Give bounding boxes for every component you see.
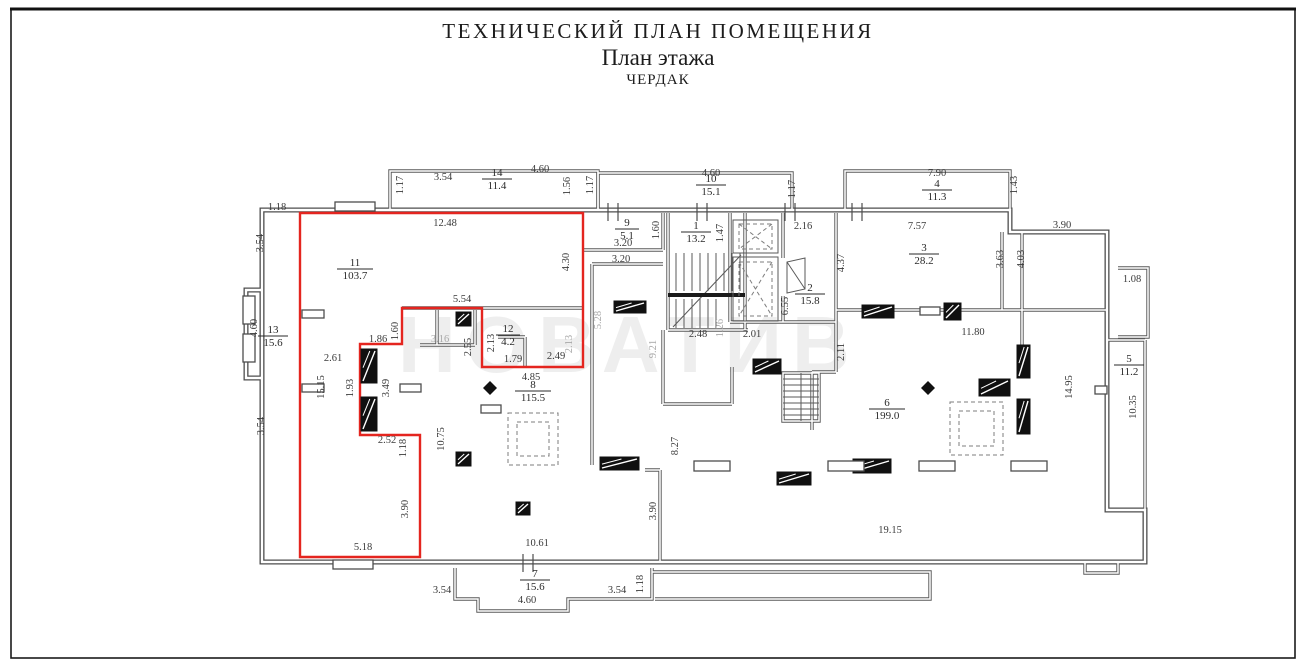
room-area: 11.4	[488, 180, 507, 192]
dimension-label: 5.28	[593, 311, 604, 329]
dimension-label: 1.43	[1009, 176, 1020, 194]
dimension-label: 14.95	[1064, 375, 1075, 399]
dimension-label: 2.11	[836, 343, 847, 361]
room-area: 103.7	[343, 270, 368, 282]
dimension-label: 1.79	[504, 354, 522, 365]
vent-shaft	[614, 301, 646, 313]
dimension-label: 3.54	[433, 585, 452, 596]
wall-opening	[694, 461, 730, 471]
dimension-label: 15.15	[316, 375, 327, 399]
room-area: 5.1	[620, 230, 634, 242]
vent-shaft	[862, 305, 894, 318]
room-label: 328.2	[909, 242, 939, 267]
dimension-label: 1.60	[651, 221, 662, 239]
dimension-label: 3.54	[434, 172, 453, 183]
wall-opening	[481, 405, 501, 413]
room-number: 4	[934, 178, 940, 190]
dimension-label: 5.54	[453, 294, 472, 305]
vent-shaft	[1017, 345, 1030, 378]
dimension-label: 2.16	[794, 221, 812, 232]
wall-opening	[302, 310, 324, 318]
vent-shaft	[753, 359, 781, 374]
dimension-label: 10.61	[525, 538, 549, 549]
dimension-label: 3.90	[648, 502, 659, 520]
dimension-label: 3.90	[1053, 220, 1071, 231]
dimension-label: 2.61	[324, 353, 342, 364]
vent-shaft	[361, 349, 377, 383]
dimension-label: 10.35	[1128, 395, 1139, 419]
wall-opening	[919, 461, 955, 471]
vent-shaft	[979, 379, 1010, 396]
dimension-label: 3.20	[612, 254, 630, 265]
door-leaf	[787, 258, 805, 293]
room-number: 6	[884, 397, 890, 409]
vent-shaft	[600, 457, 639, 470]
wall-opening	[1011, 461, 1047, 471]
room-number: 1	[693, 220, 699, 232]
wall-opening	[920, 307, 940, 315]
dimension-label: 1.56	[562, 177, 573, 195]
dimension-label: 1.08	[1123, 274, 1141, 285]
dimension-label: 12.48	[433, 218, 457, 229]
room-number: 10	[706, 173, 718, 185]
room-label: 411.3	[922, 178, 952, 203]
room-area: 4.2	[501, 336, 515, 348]
wall-opening	[333, 560, 373, 569]
dimension-label: 1.93	[345, 379, 356, 397]
room-label: 511.2	[1114, 353, 1144, 378]
dimension-label: 4.03	[1016, 250, 1027, 268]
wall-opening	[335, 202, 375, 211]
dimension-label: 7.57	[908, 221, 926, 232]
dimension-label: 11.80	[961, 327, 984, 338]
room-number: 8	[530, 379, 536, 391]
dimension-label: 1.47	[715, 224, 726, 242]
dimension-label: 3.54	[255, 233, 266, 252]
vent-shaft	[777, 472, 811, 485]
vent-shaft	[1017, 399, 1030, 434]
wall-opening	[1095, 386, 1107, 394]
dimension-label: 2.01	[743, 329, 761, 340]
room-number: 7	[532, 568, 538, 580]
wall-opening	[400, 384, 421, 392]
room-number: 12	[503, 323, 514, 335]
dimension-label: 1.60	[390, 322, 401, 340]
dimension-label: 1.18	[398, 439, 409, 457]
dimension-label: 1.17	[787, 180, 798, 198]
room-label: 11103.7	[337, 257, 373, 282]
column-marker	[921, 381, 935, 395]
dimension-label: 4.30	[561, 253, 572, 271]
room-label: 113.2	[681, 220, 711, 245]
room-area: 28.2	[914, 255, 933, 267]
floor-openings	[508, 402, 1003, 465]
dimension-label: 1.18	[268, 202, 286, 213]
interior-walls	[390, 171, 1148, 611]
room-area: 13.2	[686, 233, 705, 245]
room-area: 199.0	[875, 410, 900, 422]
dimension-label: 4.60	[249, 319, 260, 337]
dimension-label: 4.37	[836, 254, 847, 272]
dimension-label: 2.52	[378, 435, 396, 446]
wall-opening	[828, 461, 864, 471]
dimension-label: 3.63	[995, 250, 1006, 268]
room-number: 3	[921, 242, 927, 254]
room-area: 115.5	[521, 392, 546, 404]
room-area: 15.6	[525, 581, 545, 593]
room-label: 715.6	[520, 568, 550, 593]
dimension-label: 3.54	[256, 416, 267, 435]
room-number: 2	[807, 282, 813, 294]
floor-plan-drawing: НОВАТИВ	[0, 0, 1316, 667]
room-area: 11.2	[1120, 366, 1139, 378]
room-area: 15.1	[701, 186, 720, 198]
dimension-label: 2.13	[486, 334, 497, 352]
walls-light-core	[390, 171, 1148, 611]
dimension-label: 5.18	[354, 542, 372, 553]
dimension-label: 3.54	[608, 585, 627, 596]
dimension-label: 3.16	[431, 334, 449, 345]
room-number: 14	[492, 167, 504, 179]
dimension-label: 1.17	[585, 176, 596, 194]
dimension-label: 10.75	[436, 427, 447, 451]
technical-plan-page: ТЕХНИЧЕСКИЙ ПЛАН ПОМЕЩЕНИЯ План этажа ЧЕ…	[0, 0, 1316, 667]
dimension-label: 3.90	[400, 500, 411, 518]
room-number: 9	[624, 217, 630, 229]
dimension-label: 6.55	[780, 297, 791, 315]
dimension-label: 1.86	[369, 334, 387, 345]
dimension-label: 1.18	[635, 575, 646, 593]
room-label: 6199.0	[869, 397, 905, 422]
dimension-label: 1.26	[715, 319, 726, 337]
dimension-label: 19.15	[878, 525, 902, 536]
dimension-label: 9.21	[648, 340, 659, 358]
dimension-label: 2.55	[463, 338, 474, 356]
dimension-label: 2.49	[547, 351, 565, 362]
vent-shaft	[361, 397, 377, 431]
room-area: 11.3	[928, 191, 947, 203]
room-number: 11	[350, 257, 361, 269]
room-number: 13	[268, 324, 280, 336]
dimension-label: 2.48	[689, 329, 707, 340]
vent-shaft	[516, 502, 530, 515]
dimension-label: 3.49	[381, 379, 392, 397]
wall-opening	[243, 334, 255, 362]
vent-shaft	[456, 312, 471, 326]
vent-shaft	[456, 452, 471, 466]
room-number: 5	[1126, 353, 1132, 365]
dimension-label: 4.60	[518, 595, 536, 606]
dimension-label: 4.60	[531, 164, 549, 175]
room-area: 15.8	[800, 295, 820, 307]
dimension-label: 1.17	[395, 176, 406, 194]
dimension-label: 2.13	[564, 335, 575, 353]
room-area: 15.6	[263, 337, 283, 349]
vent-shaft	[944, 303, 961, 320]
room-label: 1015.1	[696, 173, 726, 198]
dimension-label: 8.27	[670, 437, 681, 455]
